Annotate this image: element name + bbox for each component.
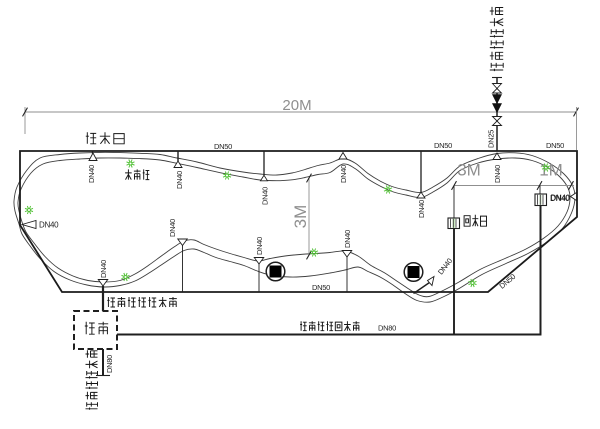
svg-text:DN50: DN50	[434, 141, 452, 150]
svg-text:DN40: DN40	[168, 219, 177, 237]
svg-text:3M: 3M	[291, 205, 310, 229]
svg-text:DN80: DN80	[105, 355, 114, 373]
svg-text:DN50: DN50	[498, 272, 518, 291]
svg-text:DN50: DN50	[546, 141, 564, 150]
svg-text:DN50: DN50	[214, 142, 232, 151]
svg-text:20M: 20M	[282, 97, 311, 114]
svg-text:DN25: DN25	[487, 130, 496, 148]
svg-text:DN40: DN40	[175, 171, 184, 189]
svg-text:3M: 3M	[457, 161, 481, 180]
svg-text:1M: 1M	[539, 161, 563, 180]
svg-text:DN40: DN40	[99, 260, 108, 278]
svg-text:DN40: DN40	[255, 237, 264, 255]
svg-text:DN40: DN40	[343, 230, 352, 248]
svg-text:DN40: DN40	[339, 165, 348, 183]
svg-text:DN40: DN40	[87, 165, 96, 183]
svg-text:DN40: DN40	[39, 221, 59, 230]
svg-text:DN40: DN40	[261, 187, 270, 205]
svg-text:DN40: DN40	[551, 194, 571, 203]
svg-text:DN50: DN50	[312, 283, 330, 292]
svg-text:DN40: DN40	[436, 257, 454, 277]
svg-text:DN40: DN40	[493, 165, 502, 183]
svg-text:DN40: DN40	[417, 200, 426, 218]
svg-text:DN80: DN80	[378, 324, 396, 333]
